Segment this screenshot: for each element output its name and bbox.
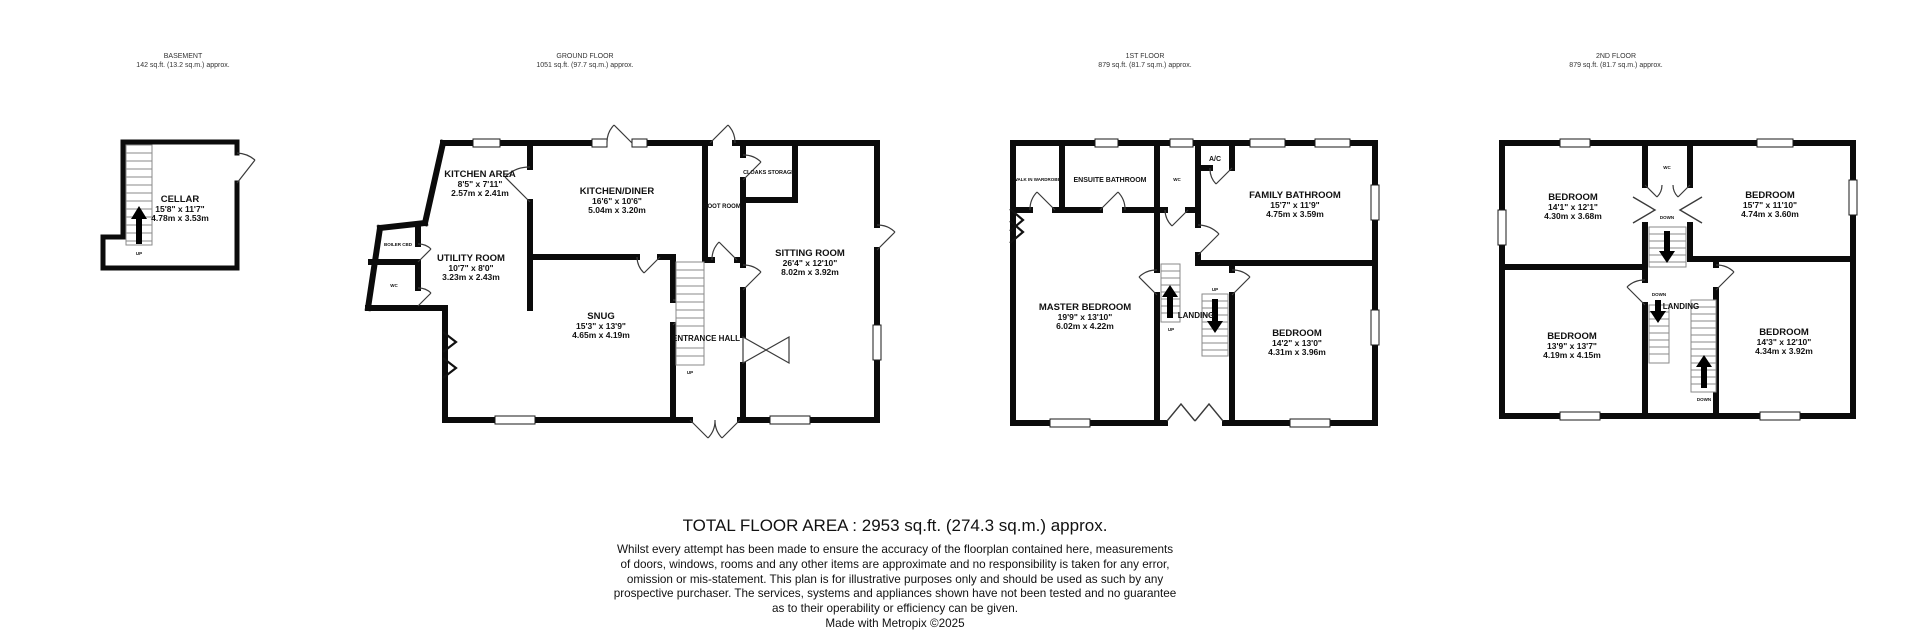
room-dims-metric: 4.30m x 3.68m <box>1544 211 1602 221</box>
disclaimer-line: as to their operability or efficiency ca… <box>420 602 1370 617</box>
staircase <box>126 145 152 245</box>
disclaimer-line: prospective purchaser. The services, sys… <box>420 587 1370 602</box>
wc-label: WC <box>390 283 398 288</box>
interior-walls <box>1013 143 1375 423</box>
room-dims-metric: 4.75m x 3.59m <box>1266 209 1324 219</box>
archway-splay-symbol <box>743 337 766 363</box>
stair-direction-label: DOWN <box>1660 215 1674 220</box>
ground-floor-plan: KITCHEN AREA 8'5" x 7'11" 2.57m x 2.41m … <box>368 125 895 438</box>
staircase <box>1649 227 1686 267</box>
window-symbol <box>1250 139 1285 147</box>
window-symbol <box>1757 139 1793 147</box>
bay-window-symbol <box>1167 404 1223 421</box>
window-symbol <box>1170 139 1193 147</box>
landing-label: LANDING <box>1663 302 1699 311</box>
boot-room-label: BOOT ROOM <box>703 204 741 210</box>
room-dims-metric: 4.78m x 3.53m <box>151 213 209 223</box>
window-symbol <box>1095 139 1118 147</box>
window-symbol <box>1498 210 1506 245</box>
window-symbol <box>1050 419 1090 427</box>
first-floor-plan: WALK IN WARDROBE ENSUITE BATHROOM WC A/C… <box>1010 139 1379 427</box>
window-symbol <box>1290 419 1330 427</box>
window-symbol <box>1849 180 1857 215</box>
stair-direction-label: UP <box>687 370 693 375</box>
disclaimer-line: omission or mis-statement. This plan is … <box>420 573 1370 588</box>
room-dims-metric: 5.04m x 3.20m <box>588 205 646 215</box>
window-symbol <box>1560 412 1600 420</box>
room-dims-metric: 4.31m x 3.96m <box>1268 347 1326 357</box>
ensuite-bathroom-label: ENSUITE BATHROOM <box>1074 177 1147 184</box>
ac-label: A/C <box>1209 156 1221 163</box>
room-dims-metric: 4.74m x 3.60m <box>1741 209 1799 219</box>
window-symbol <box>1371 185 1379 220</box>
wc-label: WC <box>1173 177 1181 182</box>
room-dims-metric: 6.02m x 4.22m <box>1056 321 1114 331</box>
disclaimer-line: Whilst every attempt has been made to en… <box>420 543 1370 558</box>
walk-in-wardrobe-label: WALK IN WARDROBE <box>1014 177 1061 182</box>
cloaks-storage-label: CLOAKS STORAGE <box>743 170 795 176</box>
window-symbol <box>632 139 647 147</box>
room-dims-metric: 4.65m x 4.19m <box>572 330 630 340</box>
exterior-walls <box>1502 143 1853 416</box>
wc-label: WC <box>1663 165 1671 170</box>
window-symbol <box>1315 139 1350 147</box>
archway-splay-symbol <box>766 337 789 363</box>
stair-direction-label: DOWN <box>1697 397 1711 402</box>
metropix-credit: Made with Metropix ©2025 <box>420 617 1370 632</box>
staircase <box>1202 294 1228 356</box>
window-symbol <box>873 325 881 360</box>
room-dims-metric: 8.02m x 3.92m <box>781 267 839 277</box>
window-symbol <box>1760 412 1800 420</box>
footer: TOTAL FLOOR AREA : 2953 sq.ft. (274.3 sq… <box>420 516 1370 632</box>
stair-direction-label: DOWN <box>1652 292 1666 297</box>
room-dims-metric: 2.57m x 2.41m <box>451 188 509 198</box>
disclaimer-line: of doors, windows, rooms and any other i… <box>420 558 1370 573</box>
exterior-walls <box>1013 143 1375 423</box>
staircase <box>676 262 704 365</box>
landing-label: LANDING <box>1178 311 1214 320</box>
window-symbol <box>770 416 810 424</box>
floorplan-page: BASEMENT 142 sq.ft. (13.2 sq.m.) approx.… <box>0 0 1920 638</box>
boiler-cupboard-label: BOILER CBD <box>384 242 413 247</box>
stair-direction-label: UP <box>136 251 142 256</box>
room-dims-metric: 3.23m x 2.43m <box>442 272 500 282</box>
room-dims-metric: 4.19m x 4.15m <box>1543 350 1601 360</box>
stair-direction-label: UP <box>1168 327 1174 332</box>
entrance-hall-label: ENTRANCE HALL <box>672 334 740 343</box>
staircase <box>1691 300 1716 392</box>
total-floor-area: TOTAL FLOOR AREA : 2953 sq.ft. (274.3 sq… <box>420 516 1370 536</box>
window-symbol <box>592 139 607 147</box>
stair-direction-label: UP <box>1212 287 1218 292</box>
stair-outline <box>676 262 704 365</box>
basement-plan: UP CELLAR 15'8" x 11'7" 4.78m x 3.53m <box>103 142 255 268</box>
second-floor-plan: WC DOWN DOWN DOWN LANDING BEDROOM 14'1" … <box>1498 139 1857 420</box>
room-dims-metric: 4.34m x 3.92m <box>1755 346 1813 356</box>
interior-walls <box>1502 143 1853 416</box>
window-symbol <box>495 416 535 424</box>
window-symbol <box>1371 310 1379 345</box>
door-arc <box>237 153 255 183</box>
window-symbol <box>1560 139 1590 147</box>
window-symbol <box>473 139 500 147</box>
